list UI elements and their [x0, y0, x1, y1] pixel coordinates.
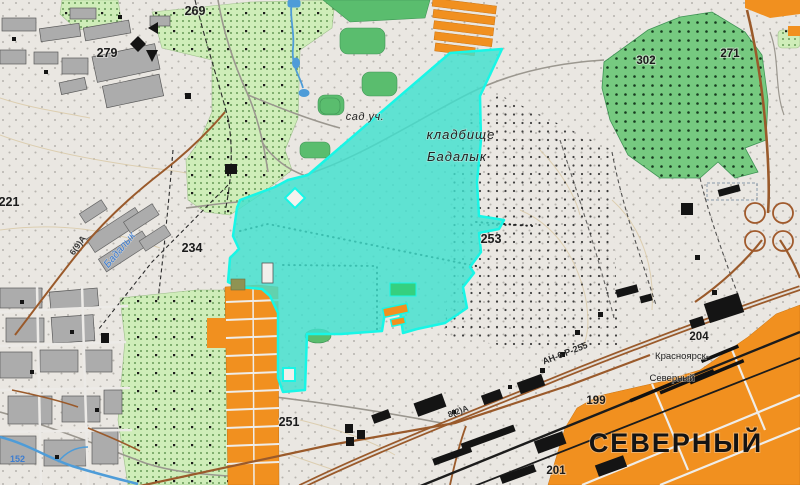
topo-map-canvas[interactable]: 269 279 221 234 253 251 302 271 204 199 … — [0, 0, 800, 485]
elevation-234: 234 — [182, 241, 203, 255]
urban-bit-top-right — [788, 26, 800, 36]
white-square-hole — [283, 368, 295, 381]
label-station-line1: Красноярск- — [655, 351, 709, 362]
elevation-271: 271 — [720, 48, 740, 60]
elevation-204: 204 — [689, 331, 709, 343]
elevation-199: 199 — [586, 395, 605, 407]
label-garden-plots: сад уч. — [346, 111, 385, 123]
label-cemetery-line2: Бадалык — [427, 149, 487, 164]
olive-plot — [231, 279, 245, 290]
elevation-279: 279 — [97, 46, 118, 60]
green-plot — [390, 283, 416, 296]
elevation-251: 251 — [279, 415, 300, 429]
label-station-line2: Северный — [649, 373, 694, 384]
elevation-253: 253 — [481, 232, 502, 246]
pond — [299, 90, 309, 97]
label-district-severny: СЕВЕРНЫЙ — [589, 427, 763, 458]
pond-small — [293, 58, 300, 68]
elevation-201: 201 — [546, 465, 566, 477]
pond-top — [288, 0, 300, 7]
elevation-269: 269 — [185, 4, 206, 18]
elevation-221: 221 — [0, 195, 19, 209]
label-water-level: 152 — [10, 454, 25, 464]
topo-map[interactable]: 269 279 221 234 253 251 302 271 204 199 … — [0, 0, 800, 485]
white-plot — [262, 263, 273, 283]
elevation-302: 302 — [636, 55, 655, 67]
label-cemetery-line1: кладбище — [427, 127, 496, 142]
